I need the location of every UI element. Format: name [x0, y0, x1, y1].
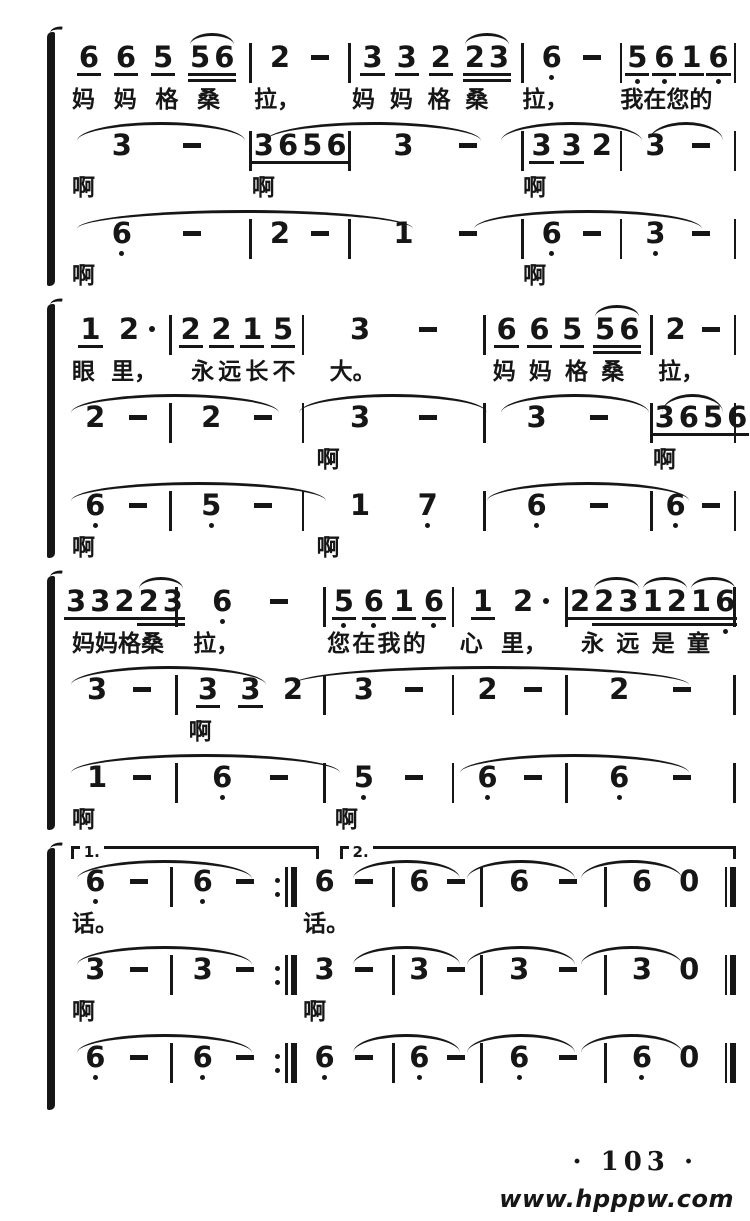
note-core: 0	[677, 954, 701, 984]
barline-thin	[734, 219, 737, 259]
dash-continuation	[580, 42, 604, 72]
lyric-cell	[396, 998, 488, 1030]
measure-notes: 2	[653, 314, 734, 355]
note: 5	[352, 762, 376, 800]
note: 6	[422, 586, 446, 628]
lyric-syllable: 啊	[72, 998, 95, 1026]
note: 3	[616, 586, 640, 626]
note-digit: 3	[88, 586, 112, 620]
note-digit: 3	[360, 42, 384, 76]
lyric-cell	[610, 1086, 736, 1118]
lyrics-line: 啊啊	[64, 998, 736, 1030]
slur-arc	[71, 482, 326, 501]
note-core: 1	[679, 42, 703, 76]
dash-continuation	[699, 314, 723, 344]
voice-3-line: 16566	[64, 750, 736, 808]
note-digit: 6	[725, 402, 749, 436]
note-digit: 5	[151, 42, 175, 76]
note-digit: 2	[268, 42, 292, 72]
note: 1	[240, 314, 264, 348]
lyric-cell	[295, 1086, 396, 1118]
slur-arc	[581, 860, 682, 879]
note-digit: 6	[706, 42, 730, 76]
note: 6	[77, 42, 101, 76]
low-octave-dot	[200, 1075, 205, 1080]
note: 5	[332, 586, 356, 628]
lyric-cell	[483, 446, 645, 478]
measure-notes: 66556	[64, 42, 249, 83]
slur-arc	[71, 666, 266, 685]
note: 2	[511, 586, 549, 616]
lyric-syllable: 啊	[303, 998, 326, 1026]
note-digit: 6	[77, 42, 101, 76]
repeat-dot	[275, 878, 280, 883]
lyrics-line: 啊啊	[64, 534, 736, 566]
note-digit: 2	[592, 586, 616, 626]
note-core: 3	[161, 586, 185, 626]
lyric-cell: 妈妈格桑	[485, 358, 651, 390]
lyric-cell: 拉，	[514, 86, 612, 118]
lyric-cell: 眼里，	[64, 358, 183, 390]
note: 6	[713, 586, 737, 634]
barline	[725, 867, 737, 907]
lyric-cell	[483, 534, 645, 566]
dash-continuation	[699, 490, 723, 520]
low-octave-dot	[93, 1075, 98, 1080]
lyric-syllable: 桑	[197, 86, 220, 114]
note-core: 6	[114, 42, 138, 76]
lyrics-line: 啊啊	[64, 446, 736, 478]
note-core: 5	[188, 42, 212, 82]
note-core: 7	[416, 490, 440, 520]
system-bracket	[44, 574, 60, 838]
note-digit: 5	[271, 314, 295, 348]
note: 5	[593, 314, 617, 354]
system: 1.2.6666660话。话。3333330啊啊6666660	[44, 846, 736, 1118]
lyric-cell	[244, 262, 348, 294]
lyric-syllable: 格	[155, 86, 178, 114]
note-digit: 2	[209, 314, 233, 348]
note-core: 5	[151, 42, 175, 76]
lyric-cell	[488, 910, 610, 942]
note: 6	[540, 42, 564, 80]
dash-continuation	[251, 402, 275, 432]
lyric-cell: 话。	[295, 910, 396, 942]
note-core: 0	[677, 866, 701, 896]
note-core: 3	[88, 586, 112, 620]
lyric-syllable: 话。	[303, 910, 349, 938]
lyric-syllable: 桑	[465, 86, 488, 114]
note-digit: 2	[117, 314, 141, 344]
dash-continuation	[352, 1042, 376, 1072]
note-core: 6	[77, 42, 101, 76]
lyric-syllable: 妈	[352, 86, 375, 114]
note-core: 0	[677, 1042, 701, 1072]
lyric-syllable: 里，	[111, 358, 157, 386]
note-core: 3	[395, 42, 419, 76]
note: 1	[679, 42, 703, 76]
system-body: 1222153665562眼里，永远长不大。妈妈格桑拉，22333656啊啊65…	[64, 302, 736, 566]
measure: 2	[653, 314, 736, 355]
lyric-syllable: 拉，	[658, 358, 704, 386]
note: 2	[209, 314, 233, 348]
lyric-cell	[348, 174, 515, 206]
note-core: 5	[560, 314, 584, 348]
dash-continuation	[127, 954, 151, 984]
voice-3-line: 651766	[64, 478, 736, 536]
lyric-cell	[181, 806, 327, 838]
dash-continuation	[521, 674, 545, 704]
low-octave-dot	[361, 795, 366, 800]
lyric-cell: 永远是童	[573, 630, 736, 662]
measure: 5616	[622, 42, 736, 84]
measure: 2215	[172, 314, 304, 355]
note-core: 2	[209, 314, 233, 348]
lyric-cell: 啊	[181, 718, 327, 750]
note-core: 6	[652, 42, 676, 76]
note-core: 6	[494, 314, 518, 348]
note: 6	[312, 866, 336, 896]
measure: 17	[304, 490, 485, 531]
measure: 33223	[351, 42, 524, 83]
dash-continuation	[416, 402, 440, 432]
note-digit: 1	[641, 586, 665, 626]
low-octave-dot	[371, 623, 376, 628]
note-core: 1	[689, 586, 713, 626]
lyric-syllable: 话。	[72, 910, 118, 938]
dash-continuation	[127, 1042, 151, 1072]
note: 3	[88, 586, 112, 620]
lyrics-line	[64, 1086, 736, 1118]
lyric-cell: 妈妈格桑	[64, 630, 185, 662]
note: 2	[592, 586, 616, 626]
low-octave-dot	[653, 251, 658, 256]
measure-notes: 6	[524, 42, 620, 83]
lyric-cell: 永远长不	[183, 358, 321, 390]
low-octave-dot	[517, 1075, 522, 1080]
note-digit: 1	[471, 586, 495, 620]
note: 6	[652, 42, 676, 84]
note-core: 1	[78, 314, 102, 348]
lyric-syllable: 妈	[72, 86, 95, 114]
note-core: 6	[210, 586, 234, 616]
measure: 2231216	[568, 586, 736, 634]
lyric-syllable: 妈	[114, 86, 137, 114]
lyric-syllable: 长	[245, 358, 268, 386]
note-digit: 3	[64, 586, 88, 620]
repeat-dot	[275, 892, 280, 897]
voice-1-line: 6655623322365616	[64, 30, 736, 88]
barline	[725, 1043, 737, 1083]
note: 6	[706, 42, 730, 84]
lyric-syllable: 啊	[523, 174, 546, 202]
measure-notes: 33223	[64, 586, 175, 627]
note-core: 1	[392, 586, 416, 620]
note: 3	[312, 954, 336, 984]
lyric-syllable: 眼	[72, 358, 95, 386]
note-core: 2	[568, 586, 592, 620]
note: 5	[188, 42, 212, 82]
measure: 66556	[486, 314, 653, 355]
repeat-dots	[275, 955, 280, 995]
dash-continuation	[456, 130, 480, 160]
page-number: · 103 ·	[0, 1147, 698, 1177]
note-core: 2	[268, 42, 292, 72]
note-digit: 6	[617, 314, 641, 354]
dash-continuation	[556, 866, 580, 896]
low-octave-dot	[617, 795, 622, 800]
barline-thin	[734, 43, 737, 83]
lyric-syllable: 拉，	[254, 86, 300, 114]
system-bracket	[44, 302, 60, 566]
barline	[734, 43, 737, 83]
slur-arc	[501, 122, 642, 141]
note-digit: 6	[494, 314, 518, 348]
low-octave-dot	[673, 523, 678, 528]
low-octave-dot	[119, 251, 124, 256]
dash-continuation	[233, 866, 257, 896]
note: 2	[117, 314, 155, 344]
note-core: 2	[112, 586, 136, 620]
note-core: 1	[471, 586, 495, 620]
measure-notes: 12	[64, 314, 169, 355]
lyric-cell	[64, 1086, 173, 1118]
note: 6	[494, 314, 518, 348]
note-digit: 5	[560, 314, 584, 348]
note-digit: 2	[112, 586, 136, 620]
measure: 5	[326, 762, 454, 803]
slur-arc	[77, 1034, 252, 1053]
voice-2-line: 22333656	[64, 390, 736, 448]
measure-notes: 5616	[326, 586, 452, 628]
slur-arc	[581, 946, 682, 965]
lyric-cell: 啊	[64, 998, 173, 1030]
barline-thin	[734, 403, 737, 443]
lyric-syllable: 啊	[317, 534, 340, 562]
slur-arc	[71, 394, 279, 413]
low-octave-dot	[534, 523, 539, 528]
slur-arc	[77, 210, 413, 229]
note: 1	[348, 490, 372, 520]
note-digit: 6	[210, 586, 234, 616]
measure: 12	[64, 314, 172, 355]
measure: 12	[454, 586, 568, 627]
note: 6	[617, 314, 641, 354]
lyric-syllable: 格	[565, 358, 588, 386]
lyric-cell: 我在您的	[612, 86, 736, 118]
low-octave-dot	[716, 79, 721, 84]
note-digit: 3	[616, 586, 640, 626]
low-octave-dot	[209, 523, 214, 528]
dash-continuation	[689, 130, 713, 160]
lyric-syllable: 的	[403, 630, 426, 658]
low-octave-dot	[549, 75, 554, 80]
note-core: 6	[312, 1042, 336, 1072]
barline-thin	[733, 763, 736, 803]
lyric-syllable: 妈	[72, 630, 95, 658]
lyric-cell	[610, 910, 736, 942]
system: 6655623322365616妈妈格桑拉，妈妈格桑拉，我在您的33656333…	[44, 30, 736, 294]
lyric-cell	[488, 998, 610, 1030]
slur-arc	[77, 860, 252, 879]
lyric-syllable: 啊	[72, 806, 95, 834]
dash-continuation	[180, 218, 204, 248]
augmentation-dot	[543, 598, 549, 604]
note-digit: 5	[332, 586, 356, 620]
measure: 6	[178, 586, 326, 627]
lyrics-line: 啊	[64, 718, 736, 750]
measure-notes: 5616	[622, 42, 733, 84]
dash-continuation	[670, 674, 694, 704]
lyric-syllable: 永	[191, 358, 214, 386]
note-digit: 3	[395, 42, 419, 76]
measure: 66556	[64, 42, 252, 83]
slur-arc	[299, 394, 487, 413]
note-digit: 1	[348, 490, 372, 520]
dash-continuation	[556, 1042, 580, 1072]
sheet-music-page: 6655623322365616妈妈格桑拉，妈妈格桑拉，我在您的33656333…	[0, 0, 750, 1221]
dash-continuation	[251, 490, 275, 520]
dash-continuation	[587, 402, 611, 432]
dash-continuation	[402, 674, 426, 704]
low-octave-dot	[549, 251, 554, 256]
note-digit: 1	[689, 586, 713, 626]
note-core: 5	[352, 762, 376, 792]
lyric-cell: 拉，	[650, 358, 736, 390]
note-digit: 2	[463, 42, 487, 82]
lyric-syllable: 啊	[189, 718, 212, 746]
note-digit: 2	[429, 42, 453, 76]
volta-bracket: 2.	[340, 846, 736, 859]
low-octave-dot	[431, 623, 436, 628]
note-core: 5	[332, 586, 356, 620]
lyric-syllable: 拉，	[522, 86, 568, 114]
note: 6	[210, 586, 234, 624]
note-digit: 7	[416, 490, 440, 520]
lyric-cell	[488, 1086, 610, 1118]
note-digit: 3	[312, 954, 336, 984]
barline	[275, 867, 297, 907]
lyric-cell	[456, 806, 573, 838]
note-core: 2	[179, 314, 203, 348]
barline-thick	[730, 1043, 736, 1083]
lyric-cell	[327, 718, 456, 750]
tie-group: 23	[463, 42, 511, 82]
note: 2	[179, 314, 203, 348]
lyric-cell	[645, 534, 736, 566]
dash-continuation	[352, 866, 376, 896]
lyric-syllable: 是	[652, 630, 675, 658]
note-digit: 2	[137, 586, 161, 626]
barline-thick	[730, 867, 736, 907]
voice-2-line: 3332322	[64, 662, 736, 720]
voice-1-line: 1222153665562	[64, 302, 736, 360]
system-body: 1.2.6666660话。话。3333330啊啊6666660	[64, 846, 736, 1118]
note-core: 3	[64, 586, 88, 620]
measure-notes: 66556	[486, 314, 650, 355]
lyric-cell: 啊	[327, 806, 456, 838]
lyric-cell	[173, 1086, 295, 1118]
lyric-syllable: 在	[643, 86, 666, 114]
augmentation-dot	[149, 326, 155, 332]
lyric-syllable: 啊	[317, 446, 340, 474]
slur-arc	[266, 122, 481, 141]
lyric-cell	[173, 910, 295, 942]
note-digit: 2	[179, 314, 203, 348]
lyric-syllable: 我	[378, 630, 401, 658]
note-core: 6	[706, 42, 730, 76]
low-octave-dot	[200, 899, 205, 904]
low-octave-dot	[93, 523, 98, 528]
barline-thin	[285, 955, 288, 995]
note-digit: 5	[188, 42, 212, 82]
lyric-cell	[619, 262, 736, 294]
lyrics-line: 话。话。	[64, 910, 736, 942]
lyric-syllable: 远	[218, 358, 241, 386]
note: 5	[625, 42, 649, 84]
note-digit: 6	[312, 1042, 336, 1072]
note: 3	[348, 314, 372, 344]
slur-arc	[501, 394, 649, 413]
note: 6	[725, 402, 749, 436]
lyric-syllable: 您	[666, 86, 689, 114]
barline-thin	[734, 315, 737, 355]
note-digit: 6	[422, 586, 446, 620]
note: 6	[362, 586, 386, 628]
tie-group: 56	[188, 42, 236, 82]
lyric-syllable: 心	[460, 630, 483, 658]
note: 3	[64, 586, 88, 620]
lyric-cell	[573, 806, 736, 838]
slur-arc	[460, 754, 688, 773]
dash-continuation	[416, 314, 440, 344]
dash-continuation	[456, 218, 480, 248]
measure-notes: 2215	[172, 314, 302, 355]
lyric-cell	[348, 262, 515, 294]
barline	[733, 763, 736, 803]
dash-continuation	[308, 218, 332, 248]
dash-continuation	[126, 402, 150, 432]
volta-label: 1.	[80, 844, 104, 860]
measure: 5616	[326, 586, 454, 628]
lyric-cell: 啊	[515, 262, 619, 294]
note: 2	[112, 586, 136, 620]
barline-thin	[733, 675, 736, 715]
lyric-syllable: 里，	[501, 630, 547, 658]
note-digit: 5	[593, 314, 617, 354]
lyric-cell: 您在我的	[319, 630, 452, 662]
tie-group: 12	[641, 586, 689, 626]
barline	[734, 491, 737, 531]
note-digit: 3	[348, 314, 372, 344]
dash-continuation	[444, 866, 468, 896]
note: 1	[641, 586, 665, 626]
lyric-cell: 拉，	[246, 86, 344, 118]
note: 2	[665, 586, 689, 626]
rest-note: 0	[677, 866, 701, 896]
note-core: 2	[463, 42, 487, 82]
barline-thin	[285, 1043, 288, 1083]
lyric-cell: 啊	[645, 446, 736, 478]
barline-thin	[725, 1043, 728, 1083]
lyrics-line: 妈妈格桑拉，您在我的心里，永远是童	[64, 630, 736, 662]
note: 1	[471, 586, 495, 620]
note-digit: 6	[212, 42, 236, 82]
lyric-cell	[573, 718, 736, 750]
barline	[734, 131, 737, 171]
barline	[734, 315, 737, 355]
low-octave-dot	[417, 1075, 422, 1080]
